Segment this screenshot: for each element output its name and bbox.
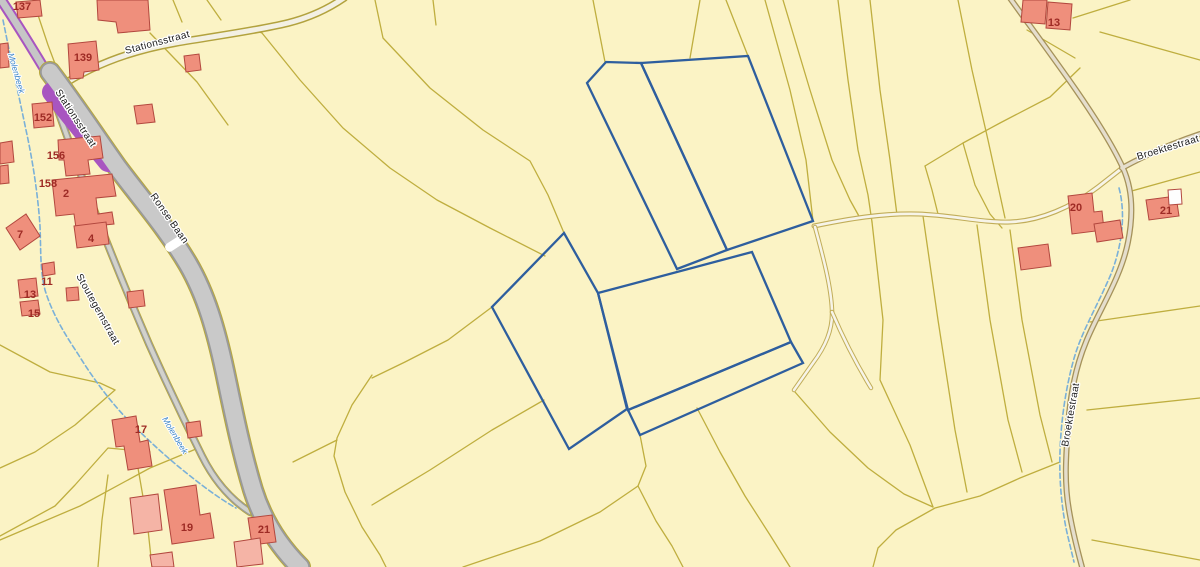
building <box>0 141 14 164</box>
building <box>186 421 202 438</box>
house-number-label: 156 <box>47 150 65 162</box>
building <box>184 54 201 72</box>
house-number-label: 158 <box>39 178 57 190</box>
house-number-label: 2 <box>63 188 69 200</box>
house-number-label: 13 <box>24 289 36 301</box>
house-number-label: 13 <box>1048 17 1060 29</box>
map-background <box>0 0 1200 567</box>
building <box>66 287 79 301</box>
house-number-label: 4 <box>88 233 95 245</box>
building <box>1168 189 1182 205</box>
house-number-label: 15 <box>28 308 40 320</box>
house-number-label: 21 <box>258 524 270 536</box>
building <box>0 165 9 184</box>
building <box>150 552 174 567</box>
building <box>42 262 55 276</box>
building <box>127 290 145 308</box>
house-number-label: 7 <box>17 229 23 241</box>
house-number-label: 11 <box>41 276 53 288</box>
house-number-label: 152 <box>34 112 52 124</box>
building <box>1018 244 1051 270</box>
map-canvas[interactable]: 137139152156158247111315171921132021Stat… <box>0 0 1200 567</box>
house-number-label: 21 <box>1160 205 1172 217</box>
map-viewport[interactable]: 137139152156158247111315171921132021Stat… <box>0 0 1200 567</box>
building <box>234 538 263 567</box>
house-number-label: 20 <box>1070 202 1082 214</box>
house-number-label: 139 <box>74 52 92 64</box>
building <box>134 104 155 124</box>
house-number-label: 17 <box>135 424 147 436</box>
house-number-label: 137 <box>13 1 31 13</box>
building <box>130 494 162 534</box>
building <box>1021 0 1047 24</box>
house-number-label: 19 <box>181 522 193 534</box>
building <box>1094 220 1123 242</box>
